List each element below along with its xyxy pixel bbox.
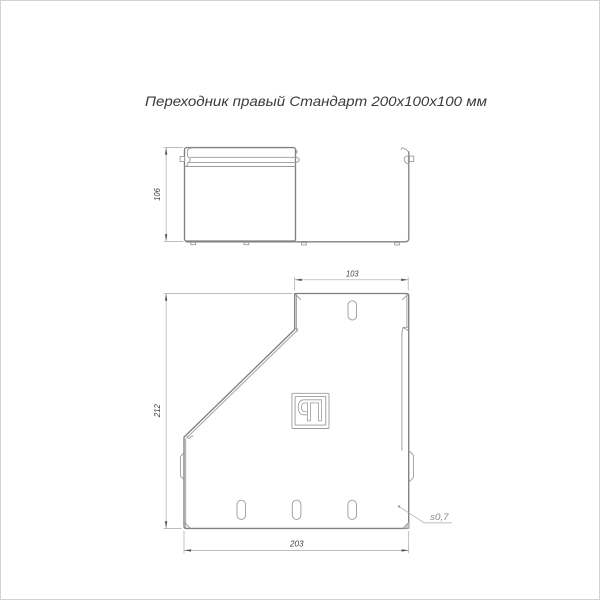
svg-text:103: 103 bbox=[346, 268, 359, 278]
svg-text:106: 106 bbox=[153, 188, 162, 201]
svg-text:212: 212 bbox=[153, 404, 162, 418]
svg-text:s0,7: s0,7 bbox=[430, 512, 450, 522]
svg-text:Переходник правый Стандарт 200: Переходник правый Стандарт 200х100х100 м… bbox=[145, 94, 488, 109]
svg-text:203: 203 bbox=[289, 539, 304, 549]
